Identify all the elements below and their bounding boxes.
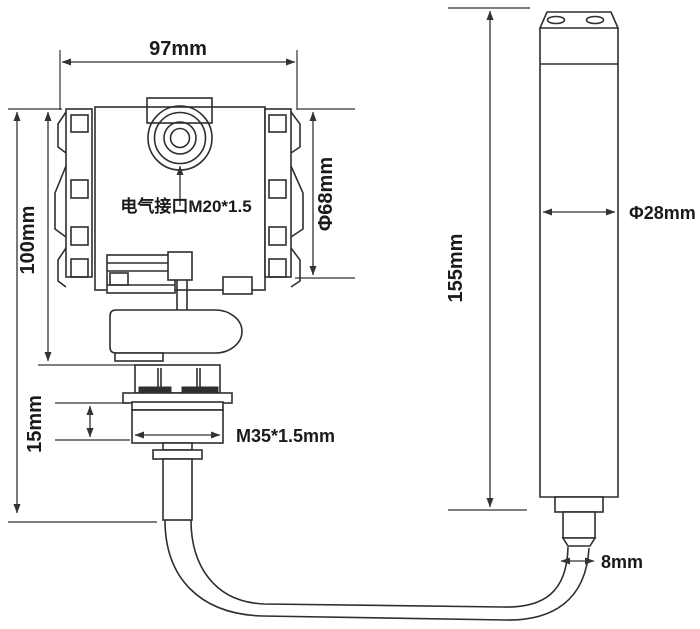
sensor-block [110, 310, 242, 353]
nut-neck [163, 443, 192, 450]
dim-label-housing-height: 100mm [17, 206, 39, 275]
dim-label-cable-diameter: 8mm [601, 552, 643, 572]
probe-top-face [540, 12, 618, 28]
cable-gland-collar [153, 450, 202, 459]
dim-label-housing-width: 97mm [149, 38, 207, 60]
electrical-interface-label: 电气接口M20*1.5 [120, 196, 251, 216]
probe-cable-taper [563, 538, 595, 546]
dim-label-housing-diameter: Φ68mm [315, 157, 337, 231]
probe-body [540, 28, 618, 497]
flange-step [132, 402, 223, 410]
housing-left-fins [55, 109, 92, 287]
dim-label-thread-height: 15mm [24, 395, 46, 453]
probe-bottom-step [555, 497, 603, 512]
thread-nut [132, 410, 223, 443]
transmitter-dimension-drawing: 97mm 100mm Φ68mm 电气接口M20*1.5 15mm M35*1.… [0, 0, 700, 629]
process-adapter [135, 365, 220, 393]
dim-label-thread-spec: M35*1.5mm [236, 426, 335, 446]
probe-figure [540, 12, 618, 546]
dim-label-probe-length: 155mm [445, 234, 467, 303]
housing-right-fins [265, 109, 303, 287]
connecting-cable [165, 520, 589, 620]
dim-label-probe-diameter: Φ28mm [629, 203, 696, 223]
probe-neck [563, 512, 595, 538]
sensor-block-step [115, 353, 163, 361]
technical-drawing-page: 97mm 100mm Φ68mm 电气接口M20*1.5 15mm M35*1.… [0, 0, 700, 629]
cable-tube [163, 459, 192, 520]
